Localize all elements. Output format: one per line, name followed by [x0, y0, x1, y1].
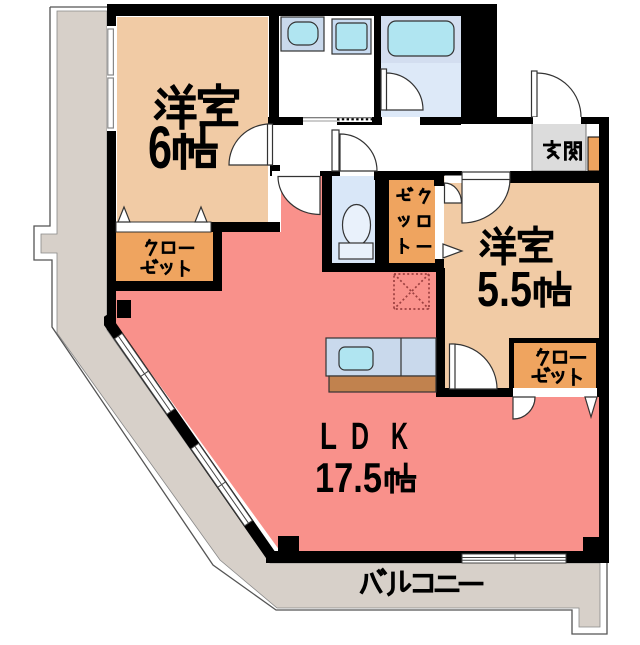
- svg-text:5.5: 5.5: [477, 263, 532, 317]
- svg-text:6: 6: [148, 114, 172, 181]
- svg-text:D: D: [351, 416, 369, 458]
- svg-text:K: K: [391, 416, 408, 458]
- svg-text:17.5: 17.5: [315, 454, 382, 501]
- svg-text:L: L: [320, 416, 337, 458]
